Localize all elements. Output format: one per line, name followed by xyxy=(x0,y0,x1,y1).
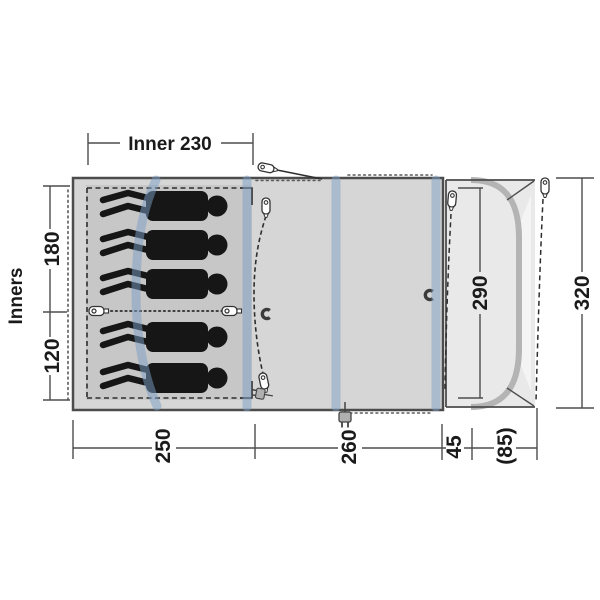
dim-120: 120 xyxy=(41,338,64,373)
guy-line-dashed xyxy=(536,199,543,401)
tent-floorplan-diagram: Inner 230 Inners 180 120 250 260 45 (85)… xyxy=(0,0,600,600)
dim-85: (85) xyxy=(494,427,517,464)
dim-260: 260 xyxy=(338,429,361,464)
dim-250: 250 xyxy=(152,428,175,463)
tent-peg-icon xyxy=(541,178,549,198)
label-inner-width: Inner 230 xyxy=(128,134,211,155)
dim-290: 290 xyxy=(469,275,492,310)
dim-320: 320 xyxy=(571,275,594,310)
tent-peg-icon xyxy=(257,162,278,174)
dim-180: 180 xyxy=(41,231,64,266)
label-inners: Inners xyxy=(6,267,27,324)
dim-45: 45 xyxy=(443,435,466,459)
floorplan-svg: Inner 230 Inners 180 120 250 260 45 (85)… xyxy=(0,0,600,600)
